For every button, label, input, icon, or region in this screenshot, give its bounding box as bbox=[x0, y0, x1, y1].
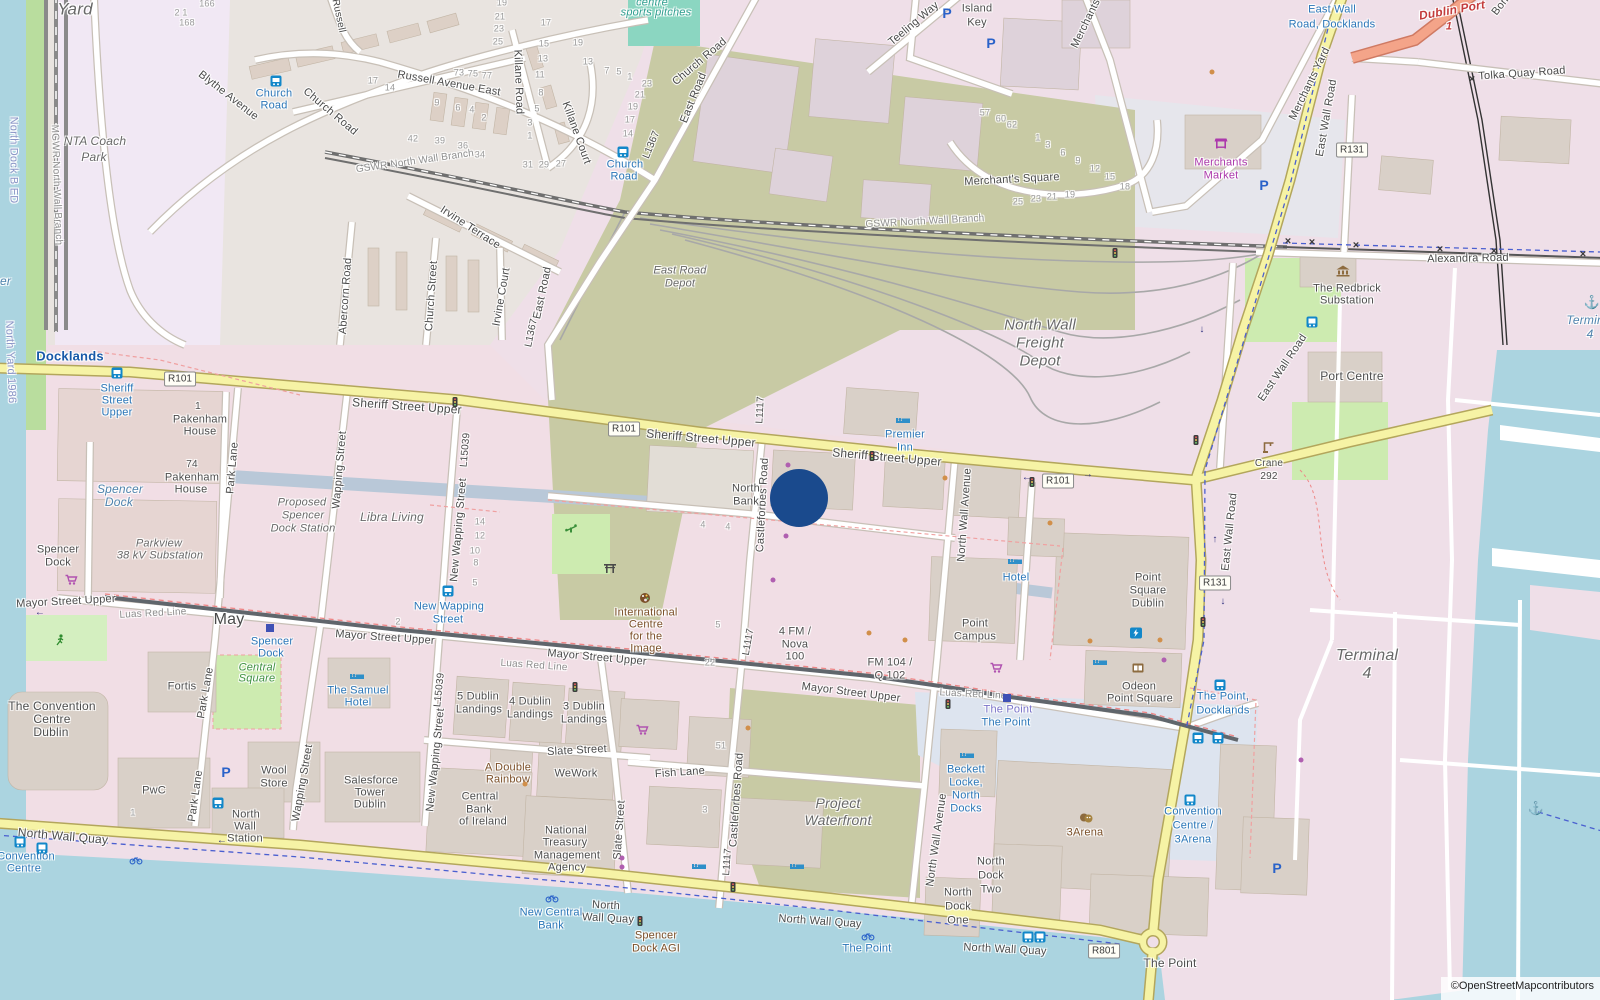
map-label: Wall bbox=[234, 822, 256, 833]
traffic-light-icon bbox=[1201, 617, 1206, 627]
map-label: × bbox=[1580, 250, 1587, 261]
map-label: Fortis bbox=[168, 682, 197, 693]
map-label: Teeling Way bbox=[887, 0, 941, 48]
map-label: Tolka Quay Road bbox=[1478, 65, 1566, 82]
location-marker bbox=[770, 469, 828, 527]
poi-dot bbox=[867, 631, 872, 636]
map-label: Store bbox=[260, 779, 287, 790]
house-number: 1 bbox=[627, 73, 632, 82]
house-number: 17 bbox=[541, 19, 551, 28]
map-label: × bbox=[1491, 247, 1498, 258]
map-label: Campus bbox=[954, 632, 996, 643]
map-label: North bbox=[592, 900, 620, 912]
map-label: Dublin bbox=[33, 726, 68, 738]
house-number: 2 1 bbox=[174, 9, 187, 18]
map-label: North bbox=[952, 791, 980, 802]
map-label: Centre / bbox=[1173, 821, 1214, 832]
map-label: Dock bbox=[258, 649, 284, 660]
map-label: Dublin bbox=[354, 800, 386, 811]
map-label: 292 bbox=[1260, 472, 1277, 482]
map-label: Square bbox=[1130, 586, 1167, 597]
map-label: Mayor Street Upper bbox=[16, 594, 116, 610]
map-label: 4 bbox=[1362, 666, 1371, 682]
map-label: × bbox=[1469, 75, 1476, 86]
map-label: North Wall Avenue bbox=[956, 468, 974, 562]
map-label: Road bbox=[260, 101, 287, 112]
map-label: Dock bbox=[978, 871, 1004, 882]
traffic-light-icon bbox=[1030, 477, 1035, 487]
map-label: Church bbox=[256, 89, 293, 100]
map-label: Image bbox=[630, 644, 662, 655]
map-label: North Dock B ED bbox=[8, 117, 19, 204]
tram-stop-icon bbox=[213, 798, 224, 809]
map-label: ↓ bbox=[1220, 597, 1225, 607]
map-label: × bbox=[1353, 241, 1360, 252]
house-number: 39 bbox=[435, 137, 445, 146]
map-label: Station bbox=[227, 834, 263, 845]
parking-icon: P bbox=[221, 765, 230, 779]
map-label: Merchant's Square bbox=[964, 172, 1060, 188]
map-label: Point bbox=[1135, 573, 1161, 584]
house-number: 25 bbox=[493, 38, 503, 47]
map-label: ↓ bbox=[1199, 325, 1204, 335]
route-shield: R101 bbox=[608, 422, 640, 437]
supermarket-icon bbox=[990, 663, 1003, 674]
house-number: 5 bbox=[472, 579, 477, 588]
map-label: L1117 bbox=[742, 628, 757, 657]
poi-dot bbox=[1048, 521, 1053, 526]
map-label: Docklands bbox=[1196, 706, 1249, 717]
map-label: Centre bbox=[629, 620, 663, 631]
map-label: Blythe Avenue bbox=[196, 69, 260, 122]
map-label: Spencer bbox=[0, 275, 11, 287]
house-number: 19 bbox=[628, 103, 638, 112]
house-number: 5 bbox=[715, 621, 720, 630]
map-label: ← bbox=[35, 608, 45, 618]
traffic-light-icon bbox=[453, 397, 458, 407]
bike-parking-icon bbox=[546, 894, 559, 903]
map-label: Pakenham bbox=[165, 473, 219, 484]
map-label: East Road bbox=[532, 266, 554, 320]
hotel-icon bbox=[790, 861, 804, 871]
map-label: Dublin Port bbox=[1418, 0, 1486, 22]
map-label: Road bbox=[610, 172, 637, 183]
map-label: 4 bbox=[1587, 328, 1594, 340]
house-number: 17 bbox=[625, 116, 635, 125]
hotel-icon bbox=[896, 415, 910, 425]
map-label: House bbox=[175, 485, 208, 496]
map-label: The Samuel bbox=[327, 686, 388, 697]
route-shield: R131 bbox=[1199, 576, 1231, 591]
map-label: The Point bbox=[982, 718, 1031, 729]
poi-dot bbox=[1088, 639, 1093, 644]
tram-stop-icon bbox=[443, 586, 454, 597]
traffic-light-icon bbox=[573, 682, 578, 692]
poi-dot bbox=[1210, 70, 1215, 75]
bus-stop-icon bbox=[37, 843, 48, 854]
route-shield: R101 bbox=[164, 372, 196, 387]
map-label: WeWork bbox=[555, 769, 598, 780]
map-label: Luas Red Line bbox=[119, 607, 187, 620]
map-label: 3Arena bbox=[1067, 828, 1104, 839]
house-number: 22 bbox=[705, 659, 715, 668]
map-label: Irvine Terrace bbox=[438, 205, 502, 252]
map-label: Agency bbox=[548, 863, 586, 874]
house-number: 2 bbox=[481, 114, 486, 123]
house-number: 14 bbox=[385, 84, 395, 93]
map-label: 4 Dublin bbox=[509, 697, 551, 708]
house-number: 13 bbox=[538, 55, 548, 64]
map-label: North Wall Avenue bbox=[925, 793, 949, 888]
map-label: Street bbox=[102, 396, 133, 407]
house-number: 23 bbox=[1031, 195, 1041, 204]
house-number: 60 bbox=[996, 115, 1006, 124]
osm-link[interactable]: OpenStreetMap bbox=[1459, 980, 1537, 992]
arts-centre-icon bbox=[639, 593, 651, 604]
house-number: 3 bbox=[702, 806, 707, 815]
map-label: Fish Lane bbox=[655, 766, 706, 780]
map-label: Depot bbox=[665, 279, 695, 290]
map-label: Spencer bbox=[97, 483, 143, 495]
map-label: Landings bbox=[561, 715, 607, 726]
map-label: Wapping Street bbox=[291, 744, 315, 823]
map-label: Project bbox=[816, 796, 861, 810]
anchor-icon: ⚓ bbox=[1584, 296, 1600, 309]
map-label: Park bbox=[81, 151, 106, 163]
copyright-text: © bbox=[1451, 980, 1459, 992]
route-shield: R101 bbox=[1042, 474, 1074, 489]
house-number: 77 bbox=[482, 72, 492, 81]
map-label: Merchants Yard bbox=[1070, 0, 1115, 50]
poi-dot bbox=[1162, 658, 1167, 663]
map-label: The Point bbox=[843, 944, 892, 955]
map-label: NTA Coach bbox=[64, 135, 127, 147]
attribution: ©OpenStreetMapcontributors bbox=[1441, 977, 1600, 1000]
map-label: New Wapping bbox=[414, 602, 484, 613]
parking-icon: P bbox=[986, 36, 995, 50]
map-label: Castleforbes Road bbox=[728, 752, 746, 847]
map-label: → bbox=[1083, 470, 1093, 480]
map-label: FM 104 / bbox=[867, 658, 912, 669]
house-number: 19 bbox=[573, 39, 583, 48]
tram-stop-icon bbox=[1193, 733, 1204, 744]
map-label: Depot bbox=[1019, 354, 1060, 369]
house-number: 36 bbox=[458, 142, 468, 151]
map-label: The Point, bbox=[1197, 692, 1249, 703]
map-label: Odeon bbox=[1122, 682, 1156, 693]
map-label: National bbox=[545, 826, 587, 837]
map-label: International bbox=[614, 608, 677, 619]
map-label: Docklands bbox=[36, 350, 104, 363]
traffic-light-icon bbox=[946, 699, 951, 709]
map-label: Management bbox=[534, 851, 600, 862]
house-number: 14 bbox=[475, 518, 485, 527]
house-number: 6 bbox=[455, 104, 460, 113]
map-label: Spencer bbox=[635, 931, 677, 942]
map-label: New Wapping Street bbox=[449, 478, 469, 583]
map-label: Landings bbox=[456, 705, 502, 716]
parking-icon: P bbox=[1272, 861, 1281, 875]
house-number: 166 bbox=[199, 0, 215, 9]
map-label: Street bbox=[433, 615, 464, 626]
map-label: The Point bbox=[984, 705, 1033, 716]
map-label: Nova bbox=[782, 640, 808, 651]
map-label: House bbox=[184, 427, 217, 438]
poi-dot bbox=[746, 726, 751, 731]
house-number: 6 bbox=[1060, 149, 1065, 158]
map-label: Convention bbox=[1164, 807, 1222, 818]
map-label: Dock Station bbox=[271, 524, 336, 535]
map-label: Park Lane bbox=[187, 770, 205, 823]
map-label: Hotel bbox=[345, 698, 372, 709]
map-label: Russell bbox=[330, 0, 347, 34]
house-number: 9 bbox=[434, 99, 439, 108]
map-label: Killane Road bbox=[511, 49, 524, 114]
map-label: Bank bbox=[733, 497, 759, 508]
map-label: 3 Dublin bbox=[563, 702, 605, 713]
map-label: Spencer bbox=[282, 511, 324, 522]
bus-stop-icon bbox=[15, 837, 26, 848]
map-label: Church Street bbox=[424, 260, 440, 331]
traffic-light-icon bbox=[731, 882, 736, 892]
map-label: Libra Living bbox=[360, 511, 424, 523]
map-label: Mayor Street Upper bbox=[335, 629, 435, 647]
map-label: Waterfront bbox=[804, 813, 871, 827]
house-number: 12 bbox=[1090, 165, 1100, 174]
map-label: Wapping Street bbox=[331, 431, 349, 510]
map-label: Tower bbox=[355, 788, 385, 799]
house-number: 9 bbox=[1075, 157, 1080, 166]
house-number: 21 bbox=[1047, 193, 1057, 202]
map-label: Spencer bbox=[251, 637, 293, 648]
hotel-icon bbox=[692, 861, 706, 871]
house-number: 5 bbox=[534, 105, 539, 114]
supermarket-icon bbox=[636, 725, 649, 736]
map-label: Crane bbox=[1255, 459, 1283, 469]
map-label: L15039 bbox=[460, 432, 473, 467]
map-label: Bank bbox=[466, 805, 492, 816]
poi-dot bbox=[903, 638, 908, 643]
map-label: Wool bbox=[261, 766, 287, 777]
map-label: North Wall Quay bbox=[17, 826, 108, 846]
tram-stop-icon bbox=[1215, 680, 1226, 691]
map-label: The Point bbox=[1143, 957, 1196, 969]
map-label: Key bbox=[967, 18, 987, 29]
house-number: 10 bbox=[470, 547, 480, 556]
map-label: L1117 bbox=[755, 396, 766, 424]
house-number: 4 bbox=[700, 521, 705, 530]
marketplace-icon bbox=[1215, 139, 1228, 150]
house-number: 19 bbox=[1065, 191, 1075, 200]
tram-platform-icon bbox=[266, 624, 274, 632]
map-label: Mayor Street Upper bbox=[801, 681, 901, 704]
map-label: Dock AGI bbox=[632, 944, 680, 955]
traffic-light-icon bbox=[870, 451, 875, 461]
house-number: 3 bbox=[527, 119, 532, 128]
map-label: Slate Street bbox=[612, 800, 627, 861]
fitness-icon bbox=[55, 634, 65, 646]
map-label: North bbox=[232, 810, 260, 821]
bike-parking-icon bbox=[130, 856, 143, 865]
poi-dot bbox=[1158, 638, 1163, 643]
map-label: Market bbox=[1204, 171, 1239, 182]
house-number: 14 bbox=[623, 130, 633, 139]
house-number: 73 bbox=[454, 69, 464, 78]
house-number: 8 bbox=[538, 89, 543, 98]
poi-dot bbox=[786, 463, 791, 468]
map-label: Bank bbox=[538, 921, 564, 932]
bus-stop-icon bbox=[1035, 932, 1046, 943]
house-number: 75 bbox=[468, 70, 478, 79]
map-label: Church bbox=[607, 160, 644, 171]
map-label: North bbox=[977, 857, 1005, 868]
cinema-icon bbox=[1132, 663, 1145, 674]
map-label: North bbox=[944, 888, 972, 899]
map-label: × bbox=[1285, 237, 1292, 248]
map-label: 100 bbox=[786, 652, 805, 663]
map-label: Slate Street bbox=[547, 744, 607, 758]
tram-stop-icon bbox=[112, 368, 123, 379]
map-label: May bbox=[214, 612, 245, 628]
map-label: GSWR North Wall Branch bbox=[355, 149, 474, 175]
map-label: Sheriff bbox=[101, 384, 134, 395]
map-label: Irvine Court bbox=[491, 267, 512, 327]
poi-dot bbox=[523, 782, 528, 787]
anchor-icon: ⚓ bbox=[1528, 802, 1544, 815]
map-label: Road, Docklands bbox=[1289, 20, 1376, 31]
house-number: 27 bbox=[556, 160, 566, 169]
map-label: New Wapping Street bbox=[425, 708, 447, 813]
map-label: Beckett bbox=[947, 765, 985, 776]
supermarket-icon bbox=[65, 575, 78, 586]
museum-icon bbox=[1337, 266, 1350, 277]
traffic-light-icon bbox=[1194, 435, 1199, 445]
map-label: East Wall bbox=[1308, 5, 1356, 16]
map-label: Sheriff Street Upper bbox=[832, 446, 942, 468]
map-label: Pakenham bbox=[173, 415, 227, 426]
map-label: Yard bbox=[57, 1, 92, 18]
map-label: of Ireland bbox=[459, 817, 507, 828]
map-label: Freight bbox=[1016, 336, 1064, 351]
map-label: sports pitches bbox=[621, 8, 692, 19]
map-label: 38 kV Substation bbox=[117, 551, 203, 562]
house-number: 34 bbox=[475, 151, 485, 160]
house-number: 42 bbox=[408, 135, 418, 144]
map-label: Q 102 bbox=[875, 671, 906, 682]
map-label: Parkview bbox=[136, 539, 182, 550]
house-number: 12 bbox=[475, 532, 485, 541]
map-label: L1367 bbox=[524, 318, 540, 348]
tram-stop-icon bbox=[618, 147, 629, 158]
house-number: 7 bbox=[604, 67, 609, 76]
house-number: 31 bbox=[523, 161, 533, 170]
hotel-icon bbox=[1008, 556, 1022, 566]
house-number: 21 bbox=[495, 13, 505, 22]
map-label: East Wall Road bbox=[1257, 333, 1310, 404]
parking-icon: P bbox=[1259, 178, 1268, 192]
map-label: GSWR North Wall Branch bbox=[865, 214, 984, 230]
house-number: 51 bbox=[716, 742, 726, 751]
map-label: Dock bbox=[105, 496, 133, 508]
house-number: 62 bbox=[1007, 121, 1017, 130]
house-number: 21 bbox=[635, 91, 645, 100]
house-number: 18 bbox=[1120, 183, 1130, 192]
map-label: 1 bbox=[195, 402, 201, 412]
map-label: L1117 bbox=[722, 848, 734, 876]
map-label: One bbox=[947, 916, 968, 927]
map-label: The Convention bbox=[8, 700, 96, 712]
house-number: 5 bbox=[616, 68, 621, 77]
map-label: L1367 bbox=[642, 130, 662, 160]
map-label: L15039 bbox=[433, 672, 447, 707]
map-label: ↑ bbox=[1212, 535, 1217, 545]
house-number: 17 bbox=[368, 77, 378, 86]
map-label: Luas Red Line bbox=[500, 659, 568, 674]
map-label: ← bbox=[217, 836, 227, 846]
bus-stop-icon bbox=[1185, 795, 1196, 806]
map-label: Landings bbox=[507, 710, 553, 721]
traffic-light-icon bbox=[1113, 248, 1118, 258]
map-label: New Central bbox=[520, 908, 583, 919]
map-label: 1 bbox=[1446, 22, 1452, 33]
house-number: 1 bbox=[130, 809, 135, 818]
map-canvas[interactable]: Blythe AvenueChurch RoadChurch RoadEast … bbox=[0, 0, 1600, 1000]
bus-stop-icon bbox=[1307, 317, 1318, 328]
hotel-icon bbox=[350, 671, 364, 681]
house-number: 13 bbox=[583, 58, 593, 67]
map-label: Substation bbox=[1320, 296, 1374, 307]
map-label: Spencer bbox=[37, 545, 79, 556]
map-label: for the bbox=[630, 632, 663, 643]
map-label: Dublin bbox=[1132, 599, 1164, 610]
map-label: Dock bbox=[45, 558, 71, 569]
house-number: 11 bbox=[535, 71, 545, 80]
map-label: A Double bbox=[485, 763, 531, 774]
house-number: 15 bbox=[539, 40, 549, 49]
ev-charging-icon bbox=[1130, 628, 1142, 639]
bus-stop-icon bbox=[1023, 932, 1034, 943]
tram-stop-icon bbox=[1213, 733, 1224, 744]
poi-dot bbox=[784, 534, 789, 539]
map-label: Killane Court bbox=[560, 100, 593, 165]
house-number: 1 bbox=[1035, 134, 1040, 143]
map-label: Inn bbox=[897, 443, 913, 454]
poi-dot bbox=[620, 856, 625, 861]
map-label: The Redbrick bbox=[1313, 284, 1381, 295]
map-label: Square bbox=[239, 674, 276, 685]
map-label: Church Road bbox=[301, 86, 359, 138]
map-label: Point bbox=[962, 619, 988, 630]
map-label: MGWR North Wall Branch bbox=[49, 125, 63, 246]
map-label: Park Lane bbox=[225, 442, 240, 495]
parking-icon: P bbox=[942, 6, 951, 20]
house-number: 4 bbox=[725, 523, 730, 532]
house-number: 4 bbox=[469, 106, 474, 115]
map-label: North Wall Quay bbox=[778, 914, 862, 931]
map-label: Upper bbox=[102, 408, 133, 419]
map-label: Terminal bbox=[1566, 314, 1600, 326]
map-label: PwC bbox=[142, 786, 166, 797]
map-label: × bbox=[1437, 245, 1444, 256]
traffic-light-icon bbox=[638, 916, 643, 926]
map-label: Two bbox=[981, 885, 1002, 896]
map-label: Bond Road bbox=[1490, 0, 1534, 18]
map-label: Centre bbox=[7, 864, 41, 875]
crane-icon bbox=[1263, 441, 1276, 453]
map-label: 5 Dublin bbox=[457, 692, 499, 703]
poi-dot bbox=[771, 578, 776, 583]
house-number: 29 bbox=[539, 161, 549, 170]
